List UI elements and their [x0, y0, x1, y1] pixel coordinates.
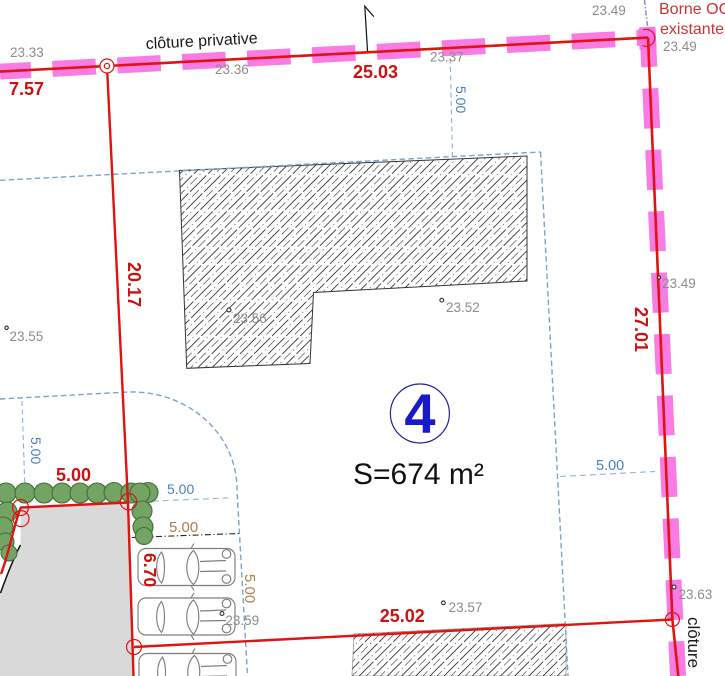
- svg-text:23.33: 23.33: [10, 45, 44, 60]
- svg-text:23.59: 23.59: [225, 613, 259, 628]
- svg-text:5.00: 5.00: [241, 574, 258, 603]
- svg-text:5.00: 5.00: [169, 519, 198, 536]
- svg-text:5.00: 5.00: [28, 437, 44, 464]
- svg-text:existante: existante: [660, 21, 724, 38]
- svg-text:23.55: 23.55: [10, 329, 44, 344]
- svg-text:5.00: 5.00: [167, 481, 194, 497]
- svg-text:25.03: 25.03: [353, 62, 398, 82]
- svg-text:5.00: 5.00: [56, 465, 91, 485]
- svg-text:23.49: 23.49: [663, 39, 697, 54]
- svg-text:27.01: 27.01: [631, 307, 651, 352]
- svg-text:20.17: 20.17: [124, 262, 144, 307]
- svg-text:23.63: 23.63: [679, 587, 713, 602]
- svg-text:23.49: 23.49: [592, 3, 626, 18]
- svg-text:4: 4: [404, 382, 435, 445]
- svg-text:7.57: 7.57: [9, 79, 44, 99]
- svg-text:clôture: clôture: [684, 617, 703, 668]
- svg-text:23.57: 23.57: [449, 600, 483, 615]
- svg-text:23.37: 23.37: [430, 50, 464, 65]
- svg-text:23.56: 23.56: [233, 311, 267, 326]
- svg-text:23.49: 23.49: [662, 276, 696, 291]
- svg-text:23.36: 23.36: [215, 62, 249, 77]
- svg-text:S=674 m²: S=674 m²: [353, 458, 484, 491]
- svg-text:5.00: 5.00: [596, 458, 624, 474]
- svg-text:25.02: 25.02: [380, 606, 425, 626]
- svg-text:Borne OG: Borne OG: [659, 1, 725, 18]
- svg-text:23.52: 23.52: [446, 300, 480, 315]
- svg-text:5.00: 5.00: [453, 86, 469, 113]
- svg-text:6.70: 6.70: [140, 553, 160, 587]
